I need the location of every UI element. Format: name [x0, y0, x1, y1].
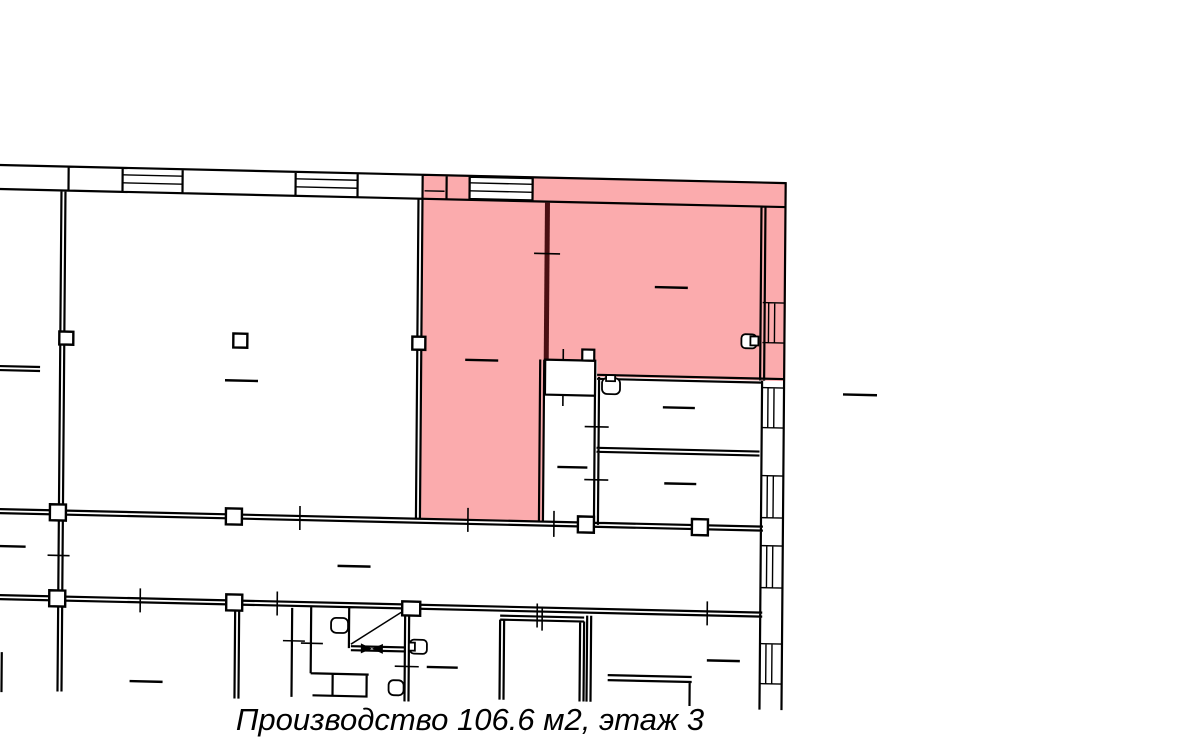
utility-room-notch [582, 349, 594, 360]
sink-icon [331, 618, 348, 633]
window-in-highlight [469, 177, 532, 200]
highlighted-area [420, 174, 787, 528]
column [226, 508, 242, 524]
column [692, 519, 708, 535]
door-arrow-icon [372, 644, 383, 654]
column [233, 333, 247, 347]
column [50, 504, 66, 520]
column [49, 590, 65, 606]
column [226, 594, 242, 610]
column [578, 516, 594, 532]
toilet-icon [389, 680, 404, 695]
highlight-divider-wall [546, 203, 547, 360]
wall-box [412, 337, 425, 350]
sink-tap-icon [606, 375, 615, 381]
floor-plan-image: Производство 106.6 м2, этаж 3 [0, 0, 1200, 745]
door-swing-line [351, 611, 401, 645]
sink-tap-icon [750, 336, 758, 345]
door-arrow-icon [361, 643, 372, 653]
floor-plan-drawing [0, 0, 1200, 745]
wall-box [59, 331, 73, 344]
plan-tilt-group [0, 164, 879, 713]
wall-box [402, 601, 420, 615]
sink-tap-icon [409, 643, 415, 651]
utility-room-outline [545, 360, 595, 396]
plan-caption: Производство 106.6 м2, этаж 3 [0, 701, 940, 739]
